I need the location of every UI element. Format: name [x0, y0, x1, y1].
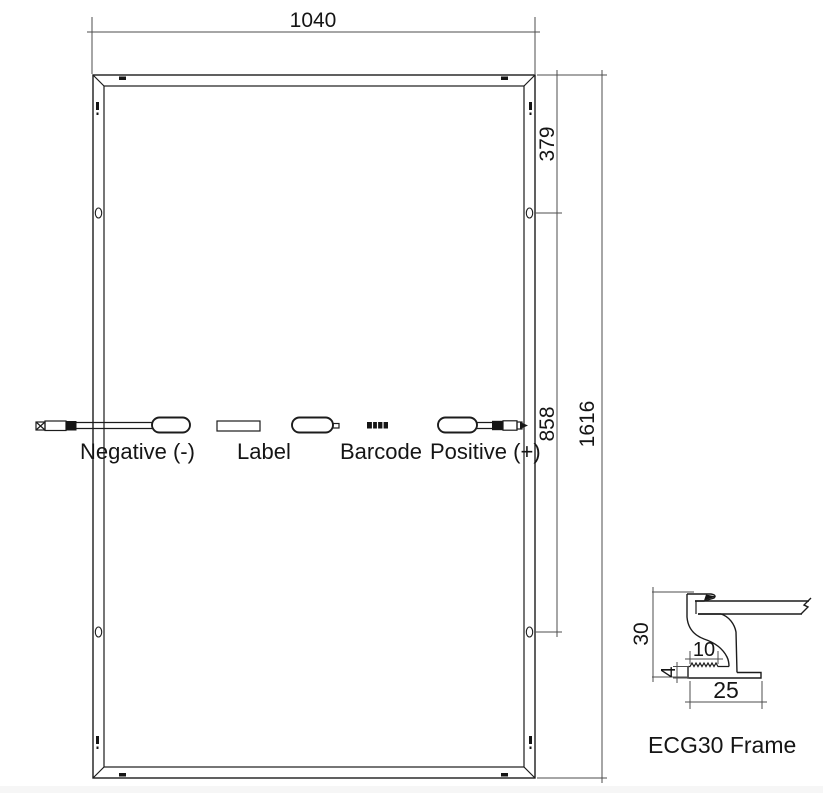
glass-laminate — [695, 598, 811, 614]
positive-label: Positive (+) — [430, 439, 541, 464]
dimension-frame-height-value: 30 — [630, 622, 653, 645]
frame-mark — [96, 736, 99, 744]
frame-mark — [530, 113, 532, 116]
frame-mark — [97, 113, 99, 116]
mounting-hole — [95, 627, 101, 637]
dimension-height-value: 1616 — [576, 401, 599, 448]
frame-mark — [97, 747, 99, 750]
negative-connector-boot — [66, 421, 77, 431]
module-back-view: 1040 1616 379 858 — [36, 9, 607, 783]
frame-mark — [529, 736, 532, 744]
dimension-width-value: 1040 — [290, 9, 337, 32]
mounting-hole — [526, 627, 532, 637]
junction-box-pod-left — [152, 418, 190, 433]
junction-labels: Negative (-) Label Barcode Positive (+) — [80, 439, 541, 464]
dimension-flange-thickness: 4 — [658, 662, 689, 683]
mounting-hole — [95, 208, 101, 218]
frame-mark — [119, 77, 126, 81]
dimension-ledge-width-value: 10 — [693, 639, 715, 661]
frame-mark — [530, 747, 532, 750]
dimension-width: 1040 — [87, 9, 540, 74]
dimension-flange-width-value: 25 — [713, 677, 739, 703]
frame-marks — [96, 77, 532, 777]
drawing-canvas: 1040 1616 379 858 — [0, 0, 823, 793]
frame-mark — [501, 773, 508, 777]
dimension-hole-span-value: 858 — [536, 406, 559, 441]
positive-connector-body — [503, 421, 517, 430]
negative-connector-body — [45, 421, 66, 431]
engineering-drawing-sheet: 1040 1616 379 858 — [0, 0, 823, 793]
frame-mark — [96, 102, 99, 110]
positive-cable — [477, 423, 492, 429]
frame-inner-edge — [104, 86, 524, 767]
negative-label: Negative (-) — [80, 439, 195, 464]
mounting-hole — [526, 208, 532, 218]
dimension-hole-offset: 379 — [535, 70, 562, 218]
profile-serrated-ledge — [688, 663, 729, 667]
barcode-label: Barcode — [340, 439, 422, 464]
frame-mark — [119, 773, 126, 777]
dimension-hole-span: 858 — [535, 213, 562, 637]
frame-outer-edge — [93, 75, 535, 778]
negative-connector-tip-detail — [36, 422, 45, 430]
dimension-flange-width: 25 — [685, 677, 767, 709]
label-plate-label: Label — [237, 439, 291, 464]
junction-box-pod-right — [438, 418, 477, 433]
junction-row — [36, 418, 528, 433]
dimension-flange-thickness-value: 4 — [658, 666, 680, 677]
negative-cable — [77, 423, 153, 429]
sheet-edge-strip — [0, 786, 823, 793]
label-plate — [217, 421, 260, 431]
glass-edges — [695, 601, 809, 614]
frame-profile — [687, 594, 761, 678]
frame-section-caption: ECG30 Frame — [648, 732, 796, 758]
dimension-hole-offset-value: 379 — [536, 126, 559, 161]
dimension-ledge-width: 10 — [685, 639, 723, 664]
module-frame-outline — [93, 75, 535, 778]
positive-connector-boot — [492, 421, 503, 430]
frame-section-view: 30 10 4 25 ECG30 Frame — [630, 587, 811, 758]
frame-mark — [501, 77, 508, 81]
frame-corner-miters — [93, 75, 535, 778]
mounting-holes — [95, 208, 532, 637]
junction-box-pod-center — [292, 418, 333, 433]
frame-mark — [529, 102, 532, 110]
